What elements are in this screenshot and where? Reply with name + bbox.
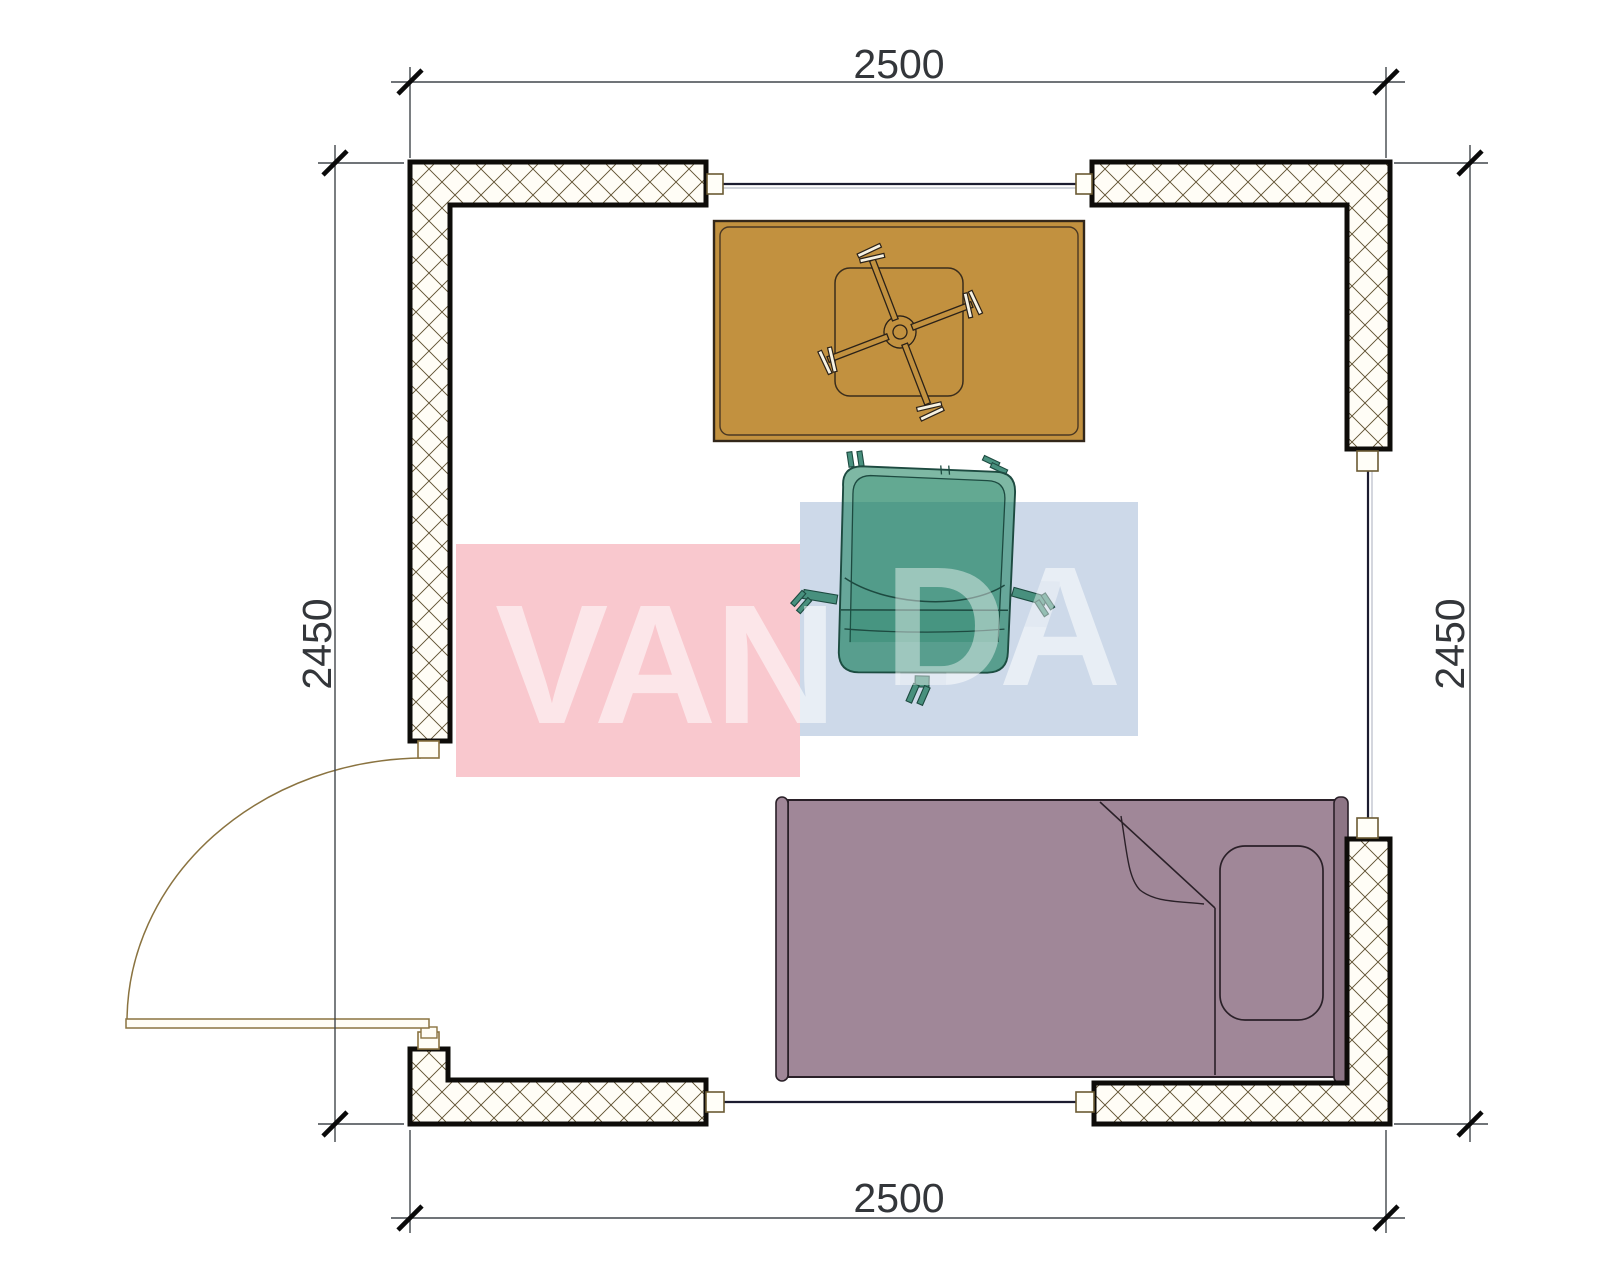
svg-text:DA: DA: [884, 532, 1118, 722]
svg-text:2500: 2500: [853, 1175, 944, 1221]
svg-text:2450: 2450: [1427, 598, 1473, 689]
svg-text:2500: 2500: [853, 41, 944, 87]
svg-text:VAN: VAN: [495, 570, 835, 760]
svg-text:2450: 2450: [294, 598, 340, 689]
